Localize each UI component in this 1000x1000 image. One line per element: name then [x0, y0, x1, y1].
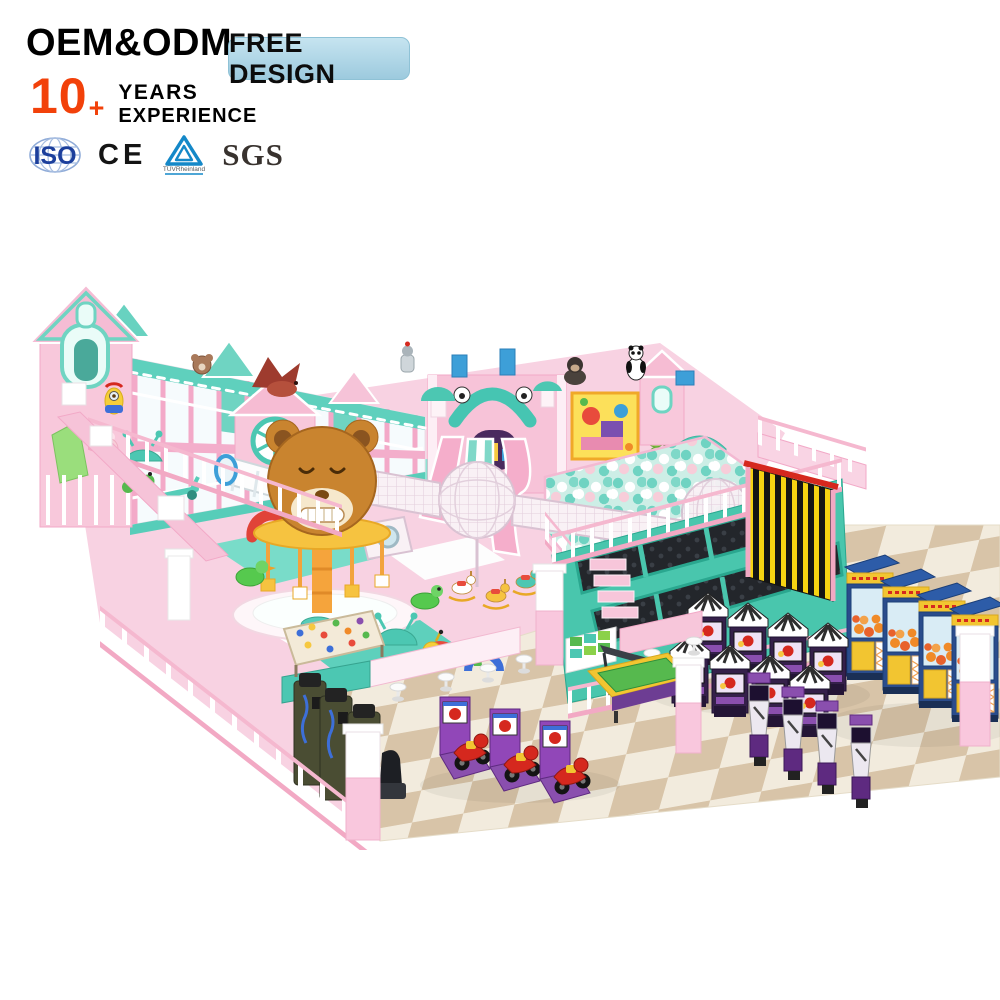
experience-label: EXPERIENCE: [118, 106, 257, 126]
pink-pillar: [343, 724, 383, 840]
oem-odm-title: OEM&ODM: [26, 22, 232, 65]
white-pillar: [165, 549, 193, 620]
ce-logo: CE: [98, 139, 146, 172]
sgs-logo: SGS: [222, 137, 284, 173]
tuv-label: TÜVRheinland: [163, 165, 206, 173]
art-panel: [572, 393, 638, 459]
iso-label: ISO: [33, 142, 76, 170]
years-plus: +: [89, 93, 105, 124]
certification-logos: ISO CE TÜVRheinland SGS: [28, 134, 284, 176]
iso-logo: ISO: [28, 135, 82, 175]
tuv-logo: TÜVRheinland: [162, 134, 206, 176]
experience-block: 10 + YEARS EXPERIENCE: [30, 74, 257, 126]
playground-illustration: [0, 225, 1000, 850]
teddy-bear-head: [266, 420, 378, 535]
pink-pillar: [956, 626, 994, 746]
knight-roof-figure: [401, 342, 414, 373]
striped-climb-wall: [744, 463, 838, 601]
pink-pillar: [673, 658, 704, 753]
years-value: 10: [30, 74, 88, 119]
playground-render: [0, 225, 1000, 850]
pink-pillar: [533, 564, 566, 665]
panda-roof-figure: [626, 346, 646, 381]
years-label: YEARS: [118, 82, 257, 103]
product-banner: OEM&ODM FREE DESIGN 10 + YEARS EXPERIENC…: [0, 0, 1000, 1000]
